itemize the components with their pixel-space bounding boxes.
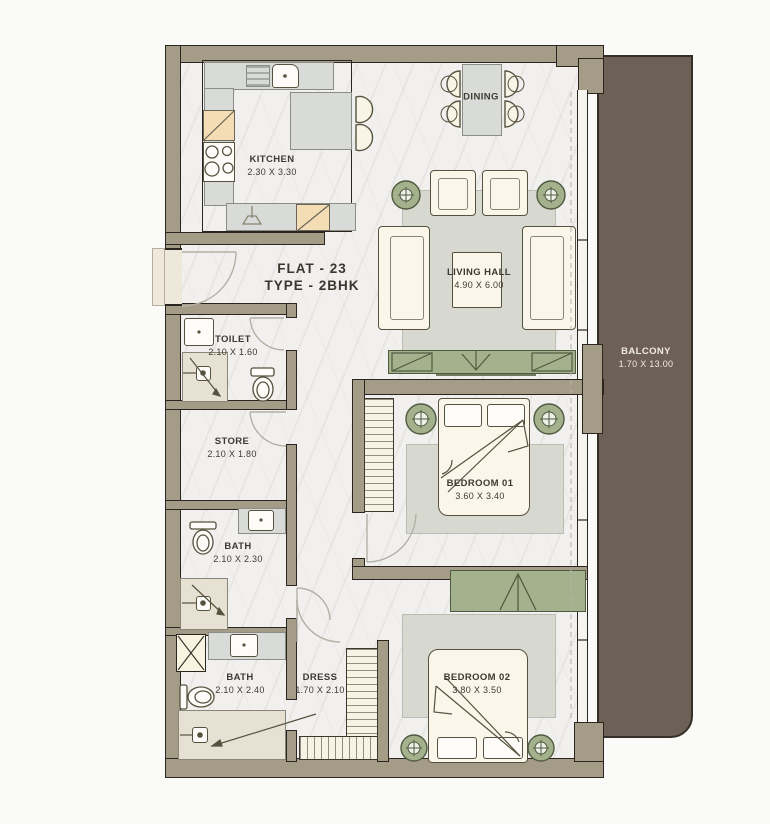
kitchen-dims: 2.30 X 3.30 — [247, 166, 296, 179]
balcony-area — [597, 55, 693, 738]
balcony-name: BALCONY — [621, 346, 671, 357]
bath2-name: BATH — [226, 672, 253, 683]
bath2-dims: 2.10 X 2.40 — [215, 684, 264, 697]
wall — [165, 232, 325, 245]
entrance-threshold — [164, 248, 182, 306]
flat-title: FLAT - 23 TYPE - 2BHK — [264, 260, 359, 294]
shaft-box — [176, 634, 206, 672]
sofa-cushion — [390, 236, 424, 320]
dining-name: DINING — [463, 92, 499, 103]
wardrobe-bedroom2 — [450, 570, 586, 612]
bedroom2-label: BEDROOM 02 3.80 X 3.50 — [444, 671, 511, 697]
kitchen-cabinet-tan — [203, 110, 235, 141]
armchair-cushion — [438, 178, 468, 210]
bedroom1-dims: 3.60 X 3.40 — [447, 490, 514, 503]
armchair-cushion — [490, 178, 520, 210]
pillow — [483, 737, 523, 759]
shower-head-icon — [196, 596, 211, 611]
wall — [286, 303, 297, 318]
store-dims: 2.10 X 1.80 — [207, 448, 256, 461]
floor-plan: BALCONY 1.70 X 13.00 — [0, 0, 770, 824]
stove-icon — [203, 142, 235, 182]
living-name: LIVING HALL — [447, 267, 511, 278]
toilet-label: TOILET 2.10 X 1.60 — [208, 333, 257, 359]
dining-label: DINING — [463, 91, 499, 104]
wardrobe-bedroom1 — [364, 398, 394, 512]
toilet-name: TOILET — [215, 334, 251, 345]
living-label: LIVING HALL 4.90 X 6.00 — [447, 266, 511, 292]
bath1-dims: 2.10 X 2.30 — [213, 553, 262, 566]
shower-head-icon — [192, 727, 208, 743]
flat-title-line2: TYPE - 2BHK — [264, 278, 359, 293]
tv-console — [388, 350, 576, 374]
bath2-label: BATH 2.10 X 2.40 — [215, 671, 264, 697]
pillow — [437, 737, 477, 759]
wall — [286, 730, 297, 762]
bedroom2-name: BEDROOM 02 — [444, 672, 511, 683]
store-name: STORE — [215, 436, 250, 447]
wall — [574, 722, 604, 762]
wall — [578, 58, 604, 94]
wall — [377, 640, 389, 762]
dress-name: DRESS — [303, 672, 338, 683]
wall — [286, 350, 297, 410]
dress-dims: 1.70 X 2.10 — [295, 684, 344, 697]
wall — [352, 379, 604, 395]
entrance-landing — [152, 248, 165, 306]
pillow — [444, 404, 482, 427]
pillow — [487, 404, 525, 427]
kitchen-counter-bottom — [226, 203, 356, 231]
dress-label: DRESS 1.70 X 2.10 — [295, 671, 344, 697]
bath1-label: BATH 2.10 X 2.30 — [213, 540, 262, 566]
store-label: STORE 2.10 X 1.80 — [207, 435, 256, 461]
wall — [286, 444, 297, 586]
wall — [582, 344, 603, 434]
kitchen-sink-icon — [272, 64, 299, 88]
kitchen-cabinet-tan-2 — [296, 204, 330, 231]
sofa-cushion — [530, 236, 564, 320]
flat-title-line1: FLAT - 23 — [277, 261, 347, 276]
dress-wardrobe-bottom — [299, 736, 378, 760]
shower-head-icon — [196, 366, 211, 381]
kitchen-breakfast-bar — [290, 92, 352, 150]
living-dims: 4.90 X 6.00 — [447, 279, 511, 292]
bath1-name: BATH — [224, 541, 251, 552]
appliance-icon — [246, 65, 270, 87]
bedroom1-name: BEDROOM 01 — [447, 478, 514, 489]
kitchen-label: KITCHEN 2.30 X 3.30 — [247, 153, 296, 179]
balcony-dims: 1.70 X 13.00 — [619, 358, 674, 371]
washbasin-icon — [248, 510, 274, 531]
dress-wardrobe-side — [346, 648, 378, 738]
kitchen-name: KITCHEN — [249, 154, 294, 165]
bedroom2-dims: 3.80 X 3.50 — [444, 684, 511, 697]
bedroom1-label: BEDROOM 01 3.60 X 3.40 — [447, 477, 514, 503]
balcony-label: BALCONY 1.70 X 13.00 — [619, 345, 674, 371]
washbasin-icon — [230, 634, 258, 657]
wall — [165, 303, 297, 315]
toilet-dims: 2.10 X 1.60 — [208, 346, 257, 359]
